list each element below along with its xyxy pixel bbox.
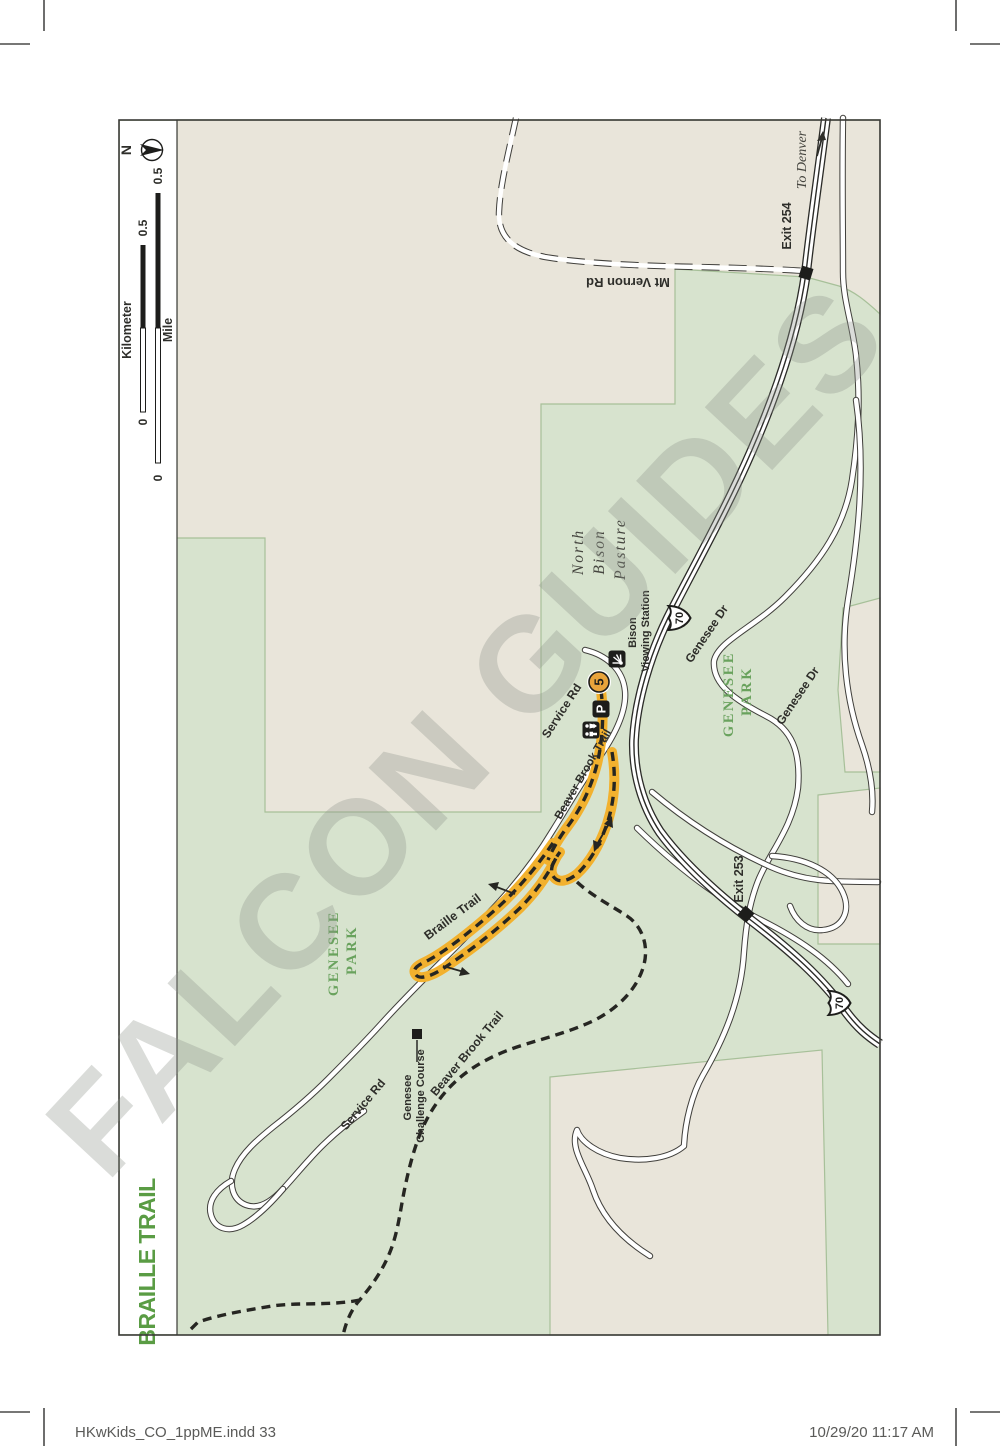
label-mt-vernon-rd: Mt Vernon Rd [586,275,670,290]
label-to-denver: To Denver [795,130,810,189]
i70-shield-number: 70 [834,997,846,1009]
scale-mile-label: Mile [161,318,175,342]
map-figure: P 5 70 70 [0,0,1000,1456]
scale-mile-zero: 0 [151,474,165,481]
label-exit-254: Exit 254 [780,202,794,249]
book-page: P 5 70 70 [0,0,1000,1456]
restroom-icon [583,722,600,739]
label-exit-253: Exit 253 [732,855,746,902]
scale-mile-max: 0.5 [151,167,165,184]
map-title: BRAILLE TRAIL [134,1178,160,1346]
footer-right: 10/29/20 11:17 AM [809,1424,934,1441]
parking-icon: P [593,701,610,718]
north-label: N [118,145,134,155]
scale-km-max: 0.5 [136,219,150,236]
scale-km-zero: 0 [136,418,150,425]
footer-left: HKwKids_CO_1ppME.indd 33 [75,1424,276,1441]
scale-km-label: Kilometer [120,301,134,359]
parking-letter: P [594,704,609,713]
